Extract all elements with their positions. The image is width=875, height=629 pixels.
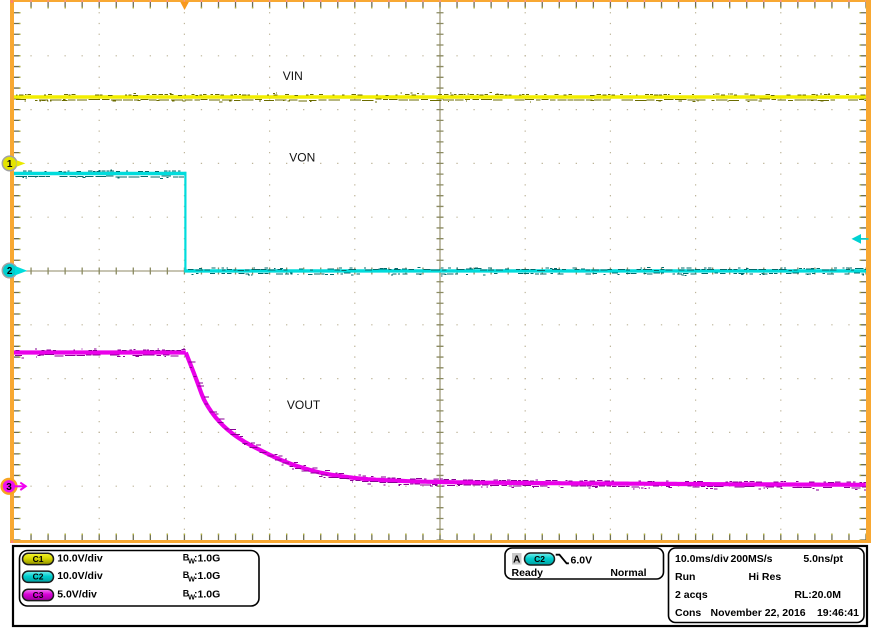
svg-text:5.0ns/pt: 5.0ns/pt: [803, 553, 843, 565]
svg-text:VOUT: VOUT: [287, 398, 321, 412]
svg-text:2: 2: [7, 266, 13, 277]
svg-text:C1: C1: [33, 554, 44, 564]
svg-text:Normal: Normal: [610, 567, 646, 579]
svg-text:C2: C2: [534, 554, 545, 564]
svg-text:C2: C2: [33, 572, 44, 582]
svg-text:RL:20.0M: RL:20.0M: [794, 589, 841, 601]
svg-text:6.0V: 6.0V: [571, 554, 593, 566]
svg-text:5.0V/div: 5.0V/div: [57, 588, 97, 600]
svg-text:C3: C3: [33, 590, 44, 600]
svg-text:A: A: [513, 555, 520, 566]
svg-text::1.0G: :1.0G: [194, 588, 220, 600]
svg-text:200MS/s: 200MS/s: [731, 553, 773, 565]
svg-text:2 acqs: 2 acqs: [675, 589, 708, 601]
svg-text::1.0G: :1.0G: [194, 570, 220, 582]
svg-text:3: 3: [6, 482, 12, 493]
svg-text:VON: VON: [289, 151, 315, 165]
svg-text:VIN: VIN: [283, 69, 303, 83]
svg-text:10.0V/div: 10.0V/div: [57, 552, 103, 564]
svg-text:Cons: Cons: [675, 607, 701, 619]
svg-text:1: 1: [7, 159, 13, 170]
svg-text:November 22, 2016: November 22, 2016: [711, 607, 806, 619]
svg-text:Run: Run: [675, 571, 695, 583]
svg-text:10.0V/div: 10.0V/div: [57, 570, 103, 582]
svg-text:19:46:41: 19:46:41: [817, 607, 859, 619]
svg-text:Ready: Ready: [512, 567, 544, 579]
svg-text:Hi Res: Hi Res: [749, 571, 782, 583]
svg-text:10.0ms/div: 10.0ms/div: [675, 553, 729, 565]
svg-text::1.0G: :1.0G: [194, 552, 220, 564]
